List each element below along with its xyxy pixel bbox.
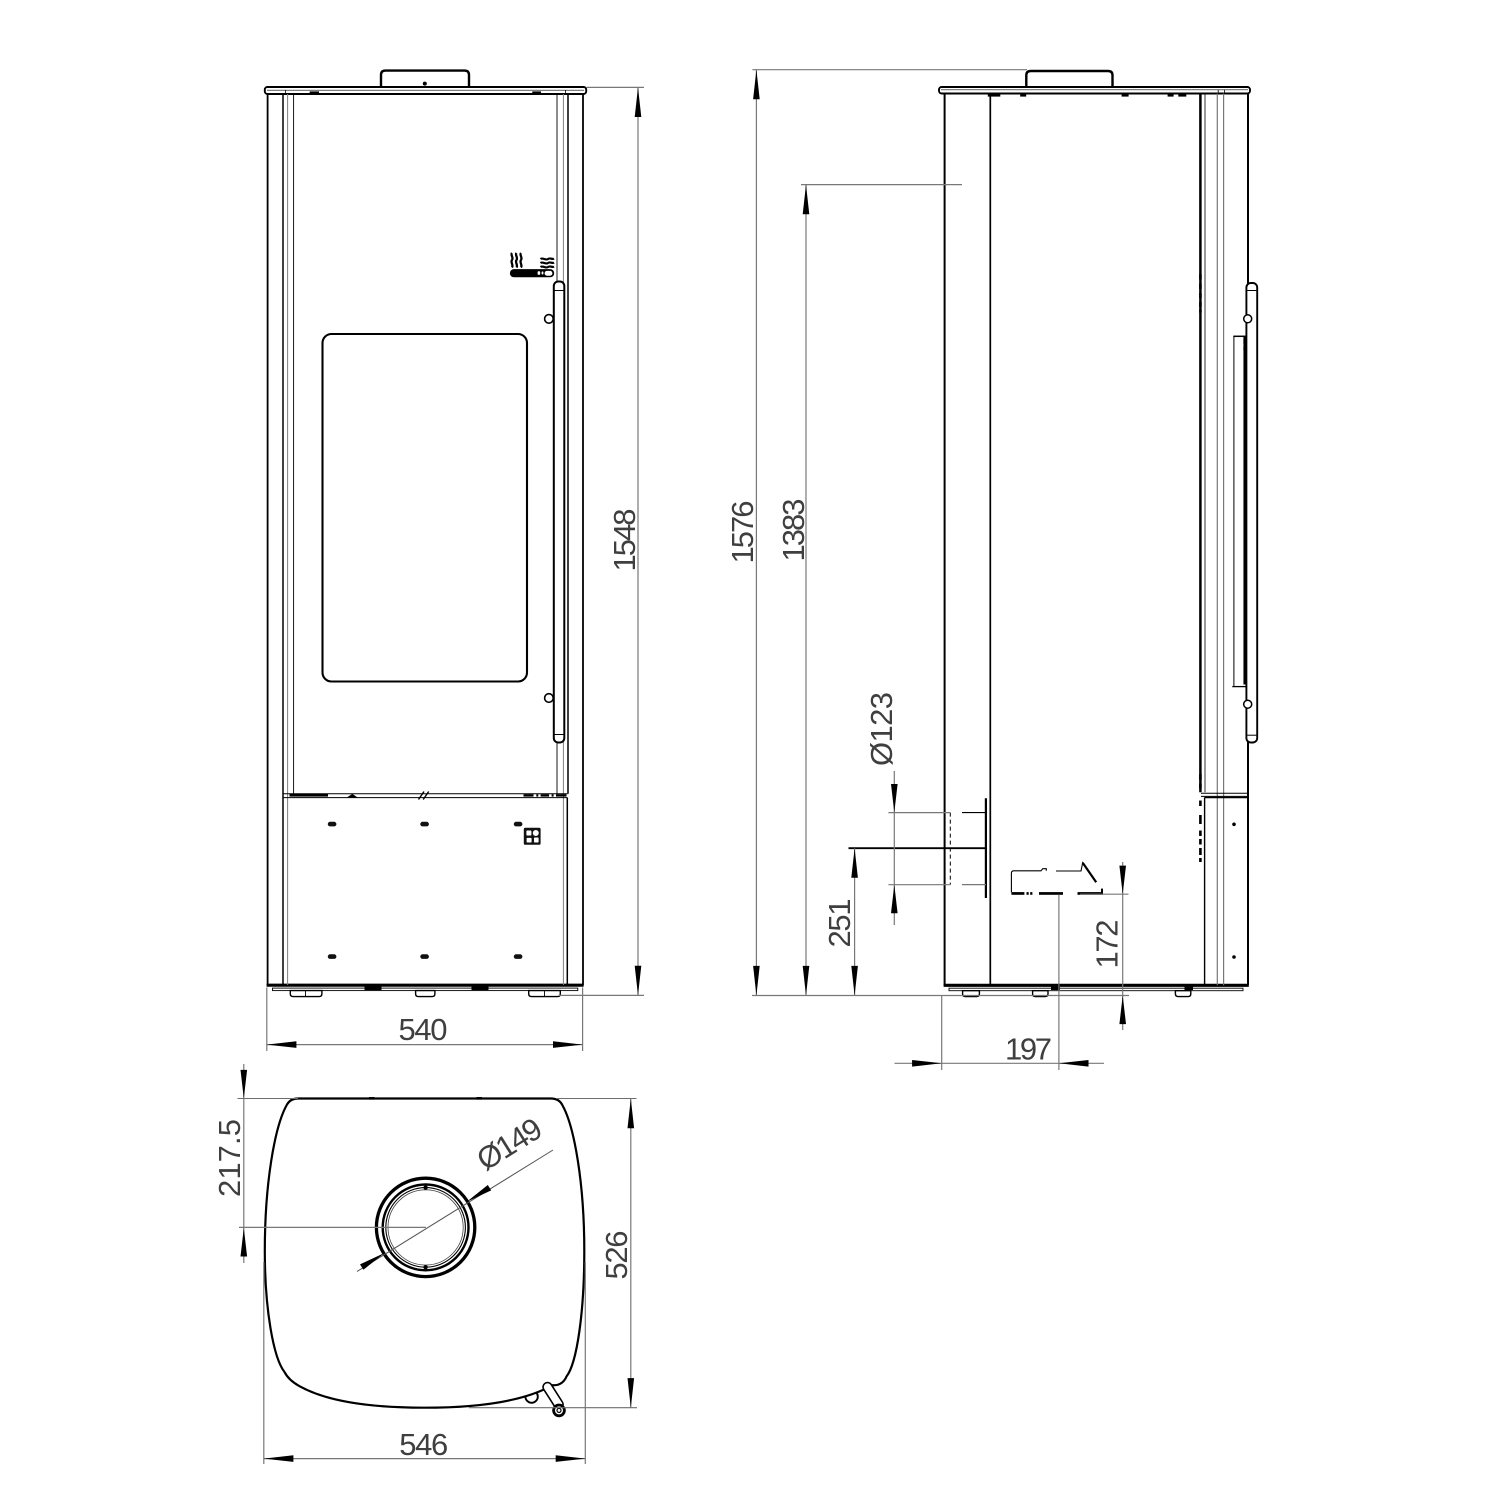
svg-text:526: 526	[599, 1231, 634, 1280]
svg-text:217.5: 217.5	[212, 1119, 247, 1197]
svg-text:197: 197	[1005, 1032, 1052, 1067]
svg-text:1548: 1548	[607, 509, 642, 572]
svg-text:251: 251	[822, 899, 857, 948]
svg-text:1576: 1576	[725, 501, 760, 564]
svg-text:546: 546	[399, 1427, 448, 1462]
svg-text:172: 172	[1090, 920, 1125, 969]
svg-text:540: 540	[399, 1012, 448, 1047]
svg-text:Ø123: Ø123	[864, 692, 899, 766]
svg-text:1383: 1383	[776, 499, 811, 562]
